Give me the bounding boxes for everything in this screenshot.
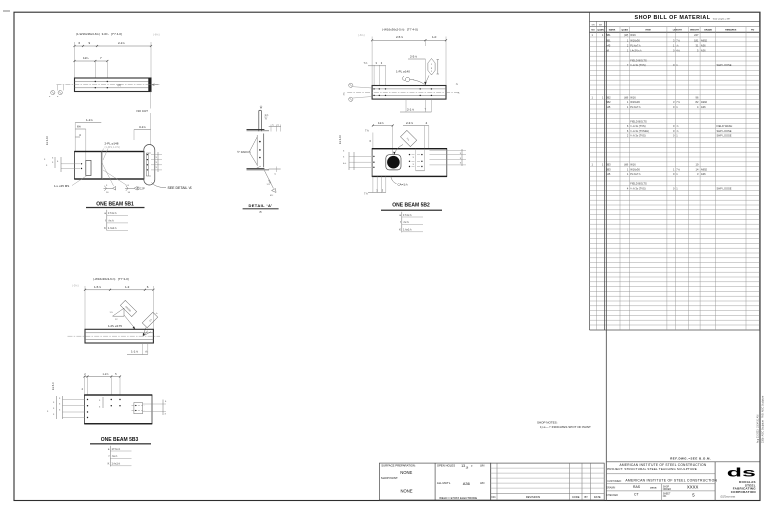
svg-text:(W): (W) [624, 163, 628, 167]
svg-text:REMARKS: REMARKS [725, 29, 737, 32]
svg-text:¾ A 3x (TVS): ¾ A 3x (TVS) [630, 124, 645, 128]
svg-text:EL 3-10: EL 3-10 [45, 135, 49, 145]
svg-text:(A): (A) [259, 211, 262, 214]
svg-text:17⅞x⅞: 17⅞x⅞ [403, 213, 412, 217]
svg-text:EL 6-0: EL 6-0 [51, 382, 55, 390]
svg-text:5B2: 5B2 [606, 100, 611, 104]
svg-text:5B1: 5B1 [606, 38, 611, 42]
svg-text:3-1¾: 3-1¾ [139, 125, 146, 129]
svg-text:SHP LOOSE: SHP LOOSE [717, 63, 732, 67]
svg-text:W16x36: W16x36 [630, 167, 640, 171]
svg-text:A36: A36 [701, 172, 706, 176]
svg-text:1⅞x1⅞: 1⅞x1⅞ [112, 462, 121, 466]
svg-text:BY: BY [584, 495, 588, 499]
svg-text:CHECKED: CHECKED [606, 494, 618, 497]
svg-text:3⅞: 3⅞ [343, 92, 346, 95]
svg-text:230b AISC Sculpture FAB: AI: 230b AISC Sculpture FAB: AISC Sculpture [761, 395, 764, 443]
svg-text:1-1⅞: 1-1⅞ [131, 350, 138, 354]
svg-text:QUAN: QUAN [621, 29, 628, 32]
svg-text:A992: A992 [701, 167, 708, 171]
svg-text:5B3: 5B3 [606, 167, 611, 171]
svg-text:(-6¾): (-6¾) [153, 33, 160, 37]
svg-text:⌀ssa: ⌀ssa [650, 485, 657, 489]
svg-text:181: 181 [694, 38, 699, 42]
svg-text:¾ A 3x (TVS): ¾ A 3x (TVS) [630, 63, 645, 67]
svg-text:NONE: NONE [400, 488, 412, 493]
svg-text:(W): (W) [624, 33, 628, 37]
svg-text:A36: A36 [701, 105, 706, 109]
svg-text:p45: p45 [606, 172, 611, 176]
svg-text:Total weight = 387: Total weight = 387 [713, 17, 731, 20]
svg-text:CUSTOMER:: CUSTOMER: [607, 480, 622, 483]
svg-text:1) ⌀—↗ INDICATES SPOT OF PAINT: 1) ⌀—↗ INDICATES SPOT OF PAINT [540, 425, 591, 429]
svg-text:45°: 45° [270, 195, 273, 197]
svg-text:SH: SH [591, 24, 594, 26]
svg-text:FIELD BOLTS: FIELD BOLTS [630, 182, 647, 186]
svg-text:EL 3-10: EL 3-10 [338, 134, 342, 144]
svg-text:FIELD WASH: FIELD WASH [717, 124, 733, 128]
svg-text:NO: NO [591, 30, 595, 32]
svg-text:K: K [104, 226, 106, 230]
svg-text:ITEM: ITEM [645, 30, 650, 32]
svg-text:DRAWN: DRAWN [606, 487, 615, 490]
svg-text:FIELD BOLTS: FIELD BOLTS [630, 58, 647, 62]
svg-text:⅞: ⅞ [272, 124, 274, 127]
svg-text:W16: W16 [630, 33, 636, 37]
svg-text:W16: W16 [630, 95, 636, 99]
svg-text:XXXX: XXXX [687, 485, 699, 490]
svg-text:CJP: CJP [140, 187, 145, 191]
svg-text:(-6¾): (-6¾) [358, 33, 365, 37]
svg-text:2-1¾: 2-1¾ [118, 41, 125, 45]
svg-text:DETAIL ‘A’: DETAIL ‘A’ [248, 203, 272, 208]
svg-text:¾ A 3x (TVS): ¾ A 3x (TVS) [630, 187, 645, 191]
svg-text:11⅞: 11⅞ [378, 121, 384, 125]
svg-text:OPEN HOLES: OPEN HOLES [437, 464, 455, 468]
svg-text:PD: PD [751, 30, 754, 32]
svg-text:Aug 23 2023 10:34:31 AM: Aug 23 2023 10:34:31 AM [757, 415, 760, 443]
svg-text:11¾: 11¾ [83, 56, 89, 60]
svg-text:A36: A36 [701, 44, 706, 48]
svg-text:1⅞x1⅞: 1⅞x1⅞ [108, 226, 117, 230]
svg-text:(1-W16x36x3-6¾) 3-6¾ [7′7 4: (1-W16x36x3-6¾) 3-6¾ [7′7 4-0] [76, 32, 122, 36]
svg-text:17⅞x⅞: 17⅞x⅞ [112, 447, 121, 451]
svg-text:ONE BEAM 5B2: ONE BEAM 5B2 [392, 203, 430, 209]
svg-text:REF.DWG.=SEE B.O.M.: REF.DWG.=SEE B.O.M. [670, 457, 711, 461]
svg-text:AMERICAN INSTITUTE OF STEEL CO: AMERICAN INSTITUTE OF STEEL CONSTRUCTION [625, 479, 717, 483]
svg-text:CORPORATION: CORPORATION [731, 490, 756, 494]
svg-text:A36: A36 [701, 49, 706, 53]
svg-text:⅞: ⅞ [277, 124, 279, 127]
svg-text:NO.: NO. [491, 495, 496, 499]
svg-text:CODE: CODE [572, 495, 580, 499]
svg-text:SHOP BILL OF MATERIAL: SHOP BILL OF MATERIAL [635, 15, 711, 21]
svg-text:2-5⅞: 2-5⅞ [396, 35, 403, 39]
svg-text:K: K [108, 462, 110, 466]
svg-text:5B2: 5B2 [606, 95, 611, 99]
svg-text:(-W16x36x3-6⅞) [7′7 3-0]: (-W16x36x3-6⅞) [7′7 3-0] [93, 277, 129, 281]
svg-text:1-L x45 MS: 1-L x45 MS [54, 184, 69, 188]
svg-text:6¾: 6¾ [77, 125, 82, 129]
svg-text:(-W16x36x2-5⅞) [7′7 4-0]: (-W16x36x2-5⅞) [7′7 4-0] [382, 28, 418, 32]
svg-text:MARK: MARK [609, 29, 616, 32]
svg-text:(-5¾): (-5¾) [72, 284, 79, 288]
svg-text:⅞: ⅞ [274, 173, 276, 176]
svg-text:SHOP: SHOP [663, 486, 670, 488]
svg-text:PL⅜x7⅞: PL⅜x7⅞ [630, 172, 641, 176]
svg-text:PROJECT: STRUCTURAL STEEL TEAC: PROJECT: STRUCTURAL STEEL TEACHING SCULP… [607, 467, 697, 471]
svg-text:247: 247 [694, 33, 699, 37]
svg-text:ORDER: ORDER [663, 489, 672, 491]
svg-text:p45: p45 [606, 105, 611, 109]
svg-text:1-3: 1-3 [125, 285, 130, 289]
svg-text:2-5⅞: 2-5⅞ [410, 55, 417, 59]
svg-text:(K): (K) [118, 83, 122, 87]
svg-text:4⅞: 4⅞ [343, 162, 346, 165]
svg-text:NO.: NO. [663, 496, 667, 498]
svg-text:LENGTH: LENGTH [673, 30, 682, 32]
svg-text:L4x3½x⅞: L4x3½x⅞ [630, 49, 642, 53]
svg-text:U/N: U/N [480, 464, 485, 468]
svg-text:W16x36: W16x36 [630, 38, 640, 42]
svg-text:ONE BEAM 5B1: ONE BEAM 5B1 [96, 201, 134, 207]
svg-text:NONE: NONE [400, 470, 412, 475]
svg-text:ds: ds [727, 467, 756, 479]
svg-text:2-1⅞: 2-1⅞ [407, 108, 414, 112]
svg-text:1⅞x1⅞: 1⅞x1⅞ [403, 228, 412, 232]
svg-text:⅞: ⅞ [156, 312, 158, 315]
svg-text:(517)xxx-xxxx: (517)xxx-xxxx [721, 495, 737, 498]
svg-text:5B3: 5B3 [606, 163, 611, 167]
svg-text:SURFACE PREPARATION:: SURFACE PREPARATION: [381, 464, 416, 468]
svg-text:p45: p45 [606, 44, 611, 48]
svg-text:PL⅜x7⅞: PL⅜x7⅞ [630, 105, 641, 109]
svg-text:A992: A992 [701, 100, 708, 104]
svg-text:A992: A992 [701, 38, 708, 42]
svg-text:13: 13 [461, 464, 465, 468]
svg-text:DATE: DATE [594, 495, 601, 499]
svg-text:¾ A 3x (TVS): ¾ A 3x (TVS) [630, 134, 645, 138]
svg-text:A36: A36 [463, 481, 471, 486]
svg-text:⅞x⅞: ⅞x⅞ [112, 454, 118, 458]
svg-text:W16x36: W16x36 [630, 100, 640, 104]
svg-text:U/N: U/N [480, 481, 485, 485]
svg-text:K: K [399, 228, 401, 232]
svg-text:QUAN: QUAN [597, 29, 604, 32]
svg-text:REVISIONS: REVISIONS [526, 495, 540, 499]
svg-text:CA=1⅞: CA=1⅞ [398, 183, 409, 187]
svg-text:SHEET: SHEET [663, 493, 671, 495]
svg-text:NO CUT: NO CUT [137, 109, 149, 113]
svg-text:WELD = E70XX ELECTRODE: WELD = E70XX ELECTRODE [439, 496, 477, 500]
svg-text:¾ A 3x (TVS2H): ¾ A 3x (TVS2H) [630, 129, 649, 133]
svg-text:SHOP PAINT:: SHOP PAINT: [381, 476, 398, 480]
svg-text:SH: SH [599, 24, 602, 26]
svg-text:1-PL ⌀140: 1-PL ⌀140 [396, 69, 410, 73]
svg-text:ONE BEAM 5B3: ONE BEAM 5B3 [101, 437, 139, 443]
svg-text:RAS: RAS [633, 485, 641, 489]
svg-text:(1-MS,1-FS): (1-MS,1-FS) [105, 145, 120, 149]
svg-text:1-1¾: 1-1¾ [86, 118, 93, 122]
svg-text:SHP LOOSE: SHP LOOSE [717, 134, 732, 138]
svg-text:2-3⅞: 2-3⅞ [406, 121, 413, 125]
svg-text:1-0: 1-0 [432, 35, 437, 39]
svg-text:W16: W16 [630, 163, 636, 167]
svg-text:ALL MAT’L: ALL MAT’L [437, 481, 451, 485]
svg-text:½″ RADIUS: ½″ RADIUS [237, 150, 251, 154]
svg-text:CT: CT [634, 493, 639, 497]
svg-text:GRADE: GRADE [704, 29, 712, 32]
svg-text:SEE DETAIL ‘A’: SEE DETAIL ‘A’ [168, 186, 193, 190]
svg-text:(W): (W) [624, 95, 628, 99]
svg-text:FIELD BOLTS: FIELD BOLTS [630, 119, 647, 123]
svg-text:17⅞x⅞: 17⅞x⅞ [108, 211, 117, 215]
svg-text:WEIGHT: WEIGHT [690, 30, 699, 32]
svg-text:1-2⅞: 1-2⅞ [103, 372, 110, 376]
svg-text:⅞: ⅞ [458, 92, 460, 95]
svg-text:⅞x⅞: ⅞x⅞ [403, 220, 409, 224]
svg-text:5B1: 5B1 [606, 33, 611, 37]
svg-text:PL⅜x7⅞: PL⅜x7⅞ [630, 44, 641, 48]
svg-text:⅞x⅞: ⅞x⅞ [108, 219, 114, 223]
svg-text:SHP LOOSE: SHP LOOSE [717, 187, 732, 191]
svg-text:1-5⅞: 1-5⅞ [94, 285, 101, 289]
svg-text:SHOP NOTES:: SHOP NOTES: [537, 421, 558, 425]
svg-text:SHP LOOSE: SHP LOOSE [717, 129, 732, 133]
svg-text:1-PL ⌀175: 1-PL ⌀175 [108, 324, 122, 328]
